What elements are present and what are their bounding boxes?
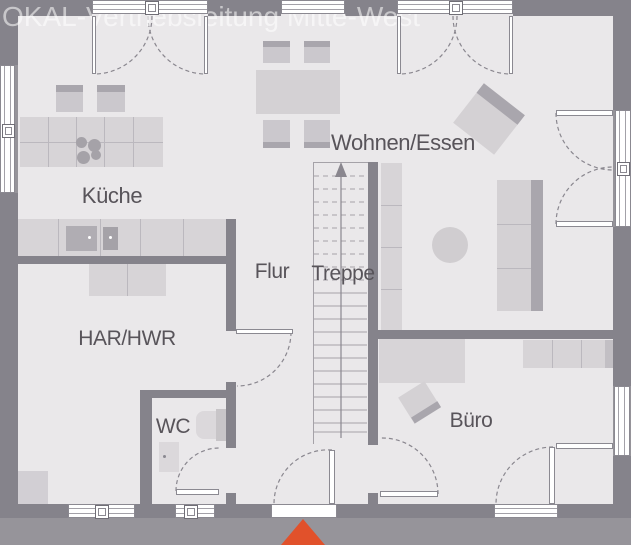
door-swing-arc (556, 113, 613, 170)
door-handle (617, 162, 630, 176)
door-swing-arc (453, 16, 511, 74)
room-label-buero: Büro (450, 409, 493, 433)
entrance-marker-icon (281, 519, 325, 545)
door-leaf (92, 16, 96, 74)
door-leaf (556, 110, 613, 116)
window-handle (2, 124, 15, 138)
room-label-wohnen-essen: Wohnen/Essen (331, 130, 475, 156)
door-swing-arc (176, 448, 219, 491)
door-swing-arc (237, 332, 291, 386)
door-leaf (204, 16, 208, 74)
room-label-har-hwr: HAR/HWR (78, 327, 176, 351)
window-top-center (281, 0, 345, 14)
door-leaf-entrance (329, 450, 335, 504)
door-leaf-terrace (549, 447, 555, 504)
door-leaf (397, 16, 401, 74)
window-handle (184, 505, 198, 519)
door-handle (145, 1, 159, 15)
watermark-text: OKAL-Vertriebsleitung Mitte-West (2, 1, 420, 33)
room-label-flur: Flur (255, 260, 290, 284)
door-leaf-buero (380, 491, 438, 497)
door-swing-arc (274, 450, 332, 504)
door-leaf-terrace (556, 443, 613, 449)
door-leaf-har (236, 329, 293, 334)
entrance-door-opening (271, 504, 337, 518)
room-label-treppe: Treppe (311, 262, 374, 286)
door-leaf-wc (176, 489, 219, 495)
door-leaf (509, 16, 513, 74)
room-label-wc: WC (156, 415, 190, 439)
door-handle (449, 1, 463, 15)
window-handle (95, 505, 109, 519)
door-swing-arc (556, 167, 613, 224)
door-leaf (556, 221, 613, 227)
window-right-buero (614, 386, 630, 456)
door-swing-arc (380, 438, 438, 494)
floor-plan: Küche Wohnen/Essen Flur Treppe HAR/HWR W… (0, 0, 631, 545)
door-bottom-buero (494, 504, 558, 518)
room-label-kueche: Küche (82, 183, 142, 209)
door-swing-arc (496, 447, 553, 504)
